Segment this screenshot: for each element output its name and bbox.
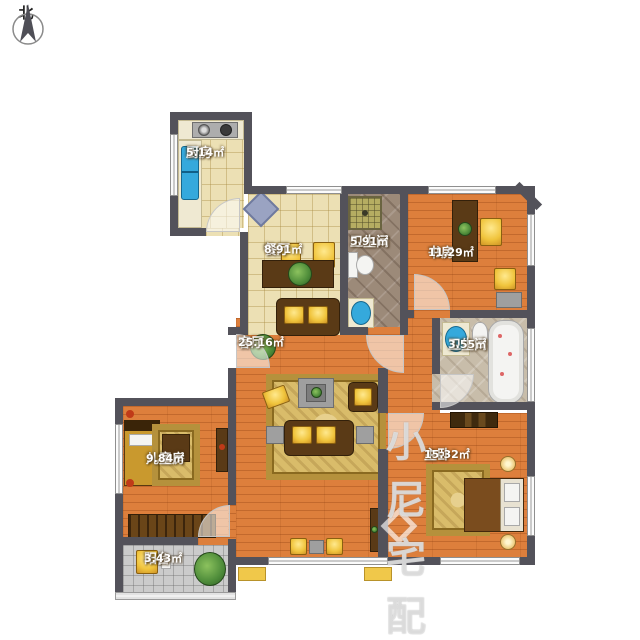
wall-children-right-lower bbox=[228, 539, 236, 565]
study-corner-chair bbox=[494, 268, 516, 290]
exterior-planter-left bbox=[238, 567, 266, 581]
study-right-window bbox=[527, 214, 535, 266]
compass: 北 bbox=[6, 2, 58, 62]
wall-dining-left bbox=[240, 232, 248, 327]
wall-kitchen-left-upper bbox=[170, 112, 178, 134]
wall-right-3 bbox=[527, 402, 535, 476]
shower-drain bbox=[362, 210, 368, 216]
children-wall-lamp-top bbox=[126, 410, 134, 418]
master-bottom-window bbox=[440, 557, 520, 565]
wall-children-left-lower bbox=[115, 494, 123, 600]
floor-plan: 厨房 5.14㎡ 餐厅 8.91㎡ 卫生间 5.91㎡ 书房 11.29㎡ 卫生… bbox=[0, 0, 640, 640]
children-shelf bbox=[216, 428, 228, 472]
bathtub bbox=[488, 320, 524, 404]
study-door-threshold bbox=[414, 310, 450, 318]
wall-children-balcony bbox=[115, 537, 198, 545]
wall-study-bottom-1 bbox=[408, 310, 414, 318]
dining-table-plant bbox=[288, 262, 312, 286]
wall-bath1-bottom bbox=[340, 327, 368, 335]
wall-master-left-upper bbox=[378, 368, 388, 413]
living-bottom-table bbox=[309, 540, 324, 554]
toilet-bath1-bowl bbox=[356, 255, 374, 275]
watermark-text: 小尼宅配 bbox=[386, 410, 429, 640]
balcony-glass-railing bbox=[115, 592, 236, 600]
dining-window bbox=[286, 186, 342, 194]
compass-icon bbox=[6, 2, 50, 48]
wall-top-2 bbox=[342, 186, 428, 194]
study-chair bbox=[480, 218, 502, 246]
living-chair-bottom-right bbox=[326, 538, 343, 555]
room-area: 9.84㎡ bbox=[146, 452, 184, 466]
wall-right-1 bbox=[527, 194, 535, 214]
bathtub-petal-3 bbox=[500, 372, 504, 376]
wall-bath1-right bbox=[400, 194, 408, 335]
side-table-right bbox=[356, 426, 374, 444]
wall-right-2 bbox=[527, 266, 535, 328]
balcony-plant bbox=[194, 552, 226, 586]
master-nightstand-lamp-bottom bbox=[500, 534, 516, 550]
sofa-bottom-cushion-1 bbox=[292, 426, 312, 444]
children-shelf-dot bbox=[219, 444, 225, 450]
room-area: 11.29㎡ bbox=[428, 246, 474, 260]
wall-top-1 bbox=[244, 186, 286, 194]
room-area: 25.16㎡ bbox=[238, 336, 284, 350]
master-wardrobe bbox=[450, 412, 498, 428]
stove-burner-right bbox=[220, 124, 232, 136]
study-desk-plant bbox=[458, 222, 472, 236]
room-area: 3.43㎡ bbox=[144, 552, 182, 566]
children-wall-lamp-bottom bbox=[126, 479, 134, 487]
sofa-top-cushion-2 bbox=[308, 306, 328, 324]
coffee-table-plant bbox=[311, 387, 322, 398]
bathtub-petal-1 bbox=[498, 334, 502, 338]
bathtub-petal-2 bbox=[508, 352, 512, 356]
room-area: 3.55㎡ bbox=[448, 338, 486, 352]
wall-kitchen-bottom bbox=[170, 228, 206, 236]
wall-kitchen-top bbox=[170, 112, 252, 120]
side-table-left bbox=[266, 426, 284, 444]
master-nightstand-lamp-top bbox=[500, 456, 516, 472]
room-area: 5.91㎡ bbox=[350, 235, 388, 249]
study-top-window bbox=[428, 186, 496, 194]
bath1-sink bbox=[351, 301, 371, 325]
master-right-window bbox=[527, 476, 535, 536]
balcony-door-threshold bbox=[198, 537, 230, 545]
room-area: 8.91㎡ bbox=[264, 243, 302, 257]
study-storage-box bbox=[496, 292, 522, 308]
wall-study-bottom-2 bbox=[450, 310, 535, 318]
wall-bath1-left bbox=[340, 194, 348, 327]
wall-kitchen-right bbox=[244, 112, 252, 194]
wall-children-right-upper bbox=[228, 406, 236, 505]
tv-cabinet-plant bbox=[371, 526, 378, 533]
master-pillow-1 bbox=[504, 483, 520, 502]
sofa-bottom-cushion-2 bbox=[316, 426, 336, 444]
room-area: 15.32㎡ bbox=[424, 448, 470, 462]
wall-bath2-left bbox=[432, 318, 440, 374]
wall-bottom-3 bbox=[520, 557, 535, 565]
kitchen-sink-divider bbox=[182, 171, 198, 173]
sofa-top-cushion-1 bbox=[284, 306, 304, 324]
kitchen-window bbox=[170, 134, 178, 196]
living-chair-bottom-left bbox=[290, 538, 307, 555]
armchair-cushion bbox=[354, 388, 372, 406]
living-bottom-window bbox=[268, 557, 388, 565]
bath2-window bbox=[527, 328, 535, 402]
children-window bbox=[115, 424, 123, 494]
stove-burner-left bbox=[198, 124, 210, 136]
wall-children-left-upper bbox=[115, 398, 123, 424]
wall-children-top bbox=[115, 398, 236, 406]
master-pillow-2 bbox=[504, 507, 520, 526]
room-area: 5.14㎡ bbox=[186, 146, 224, 160]
